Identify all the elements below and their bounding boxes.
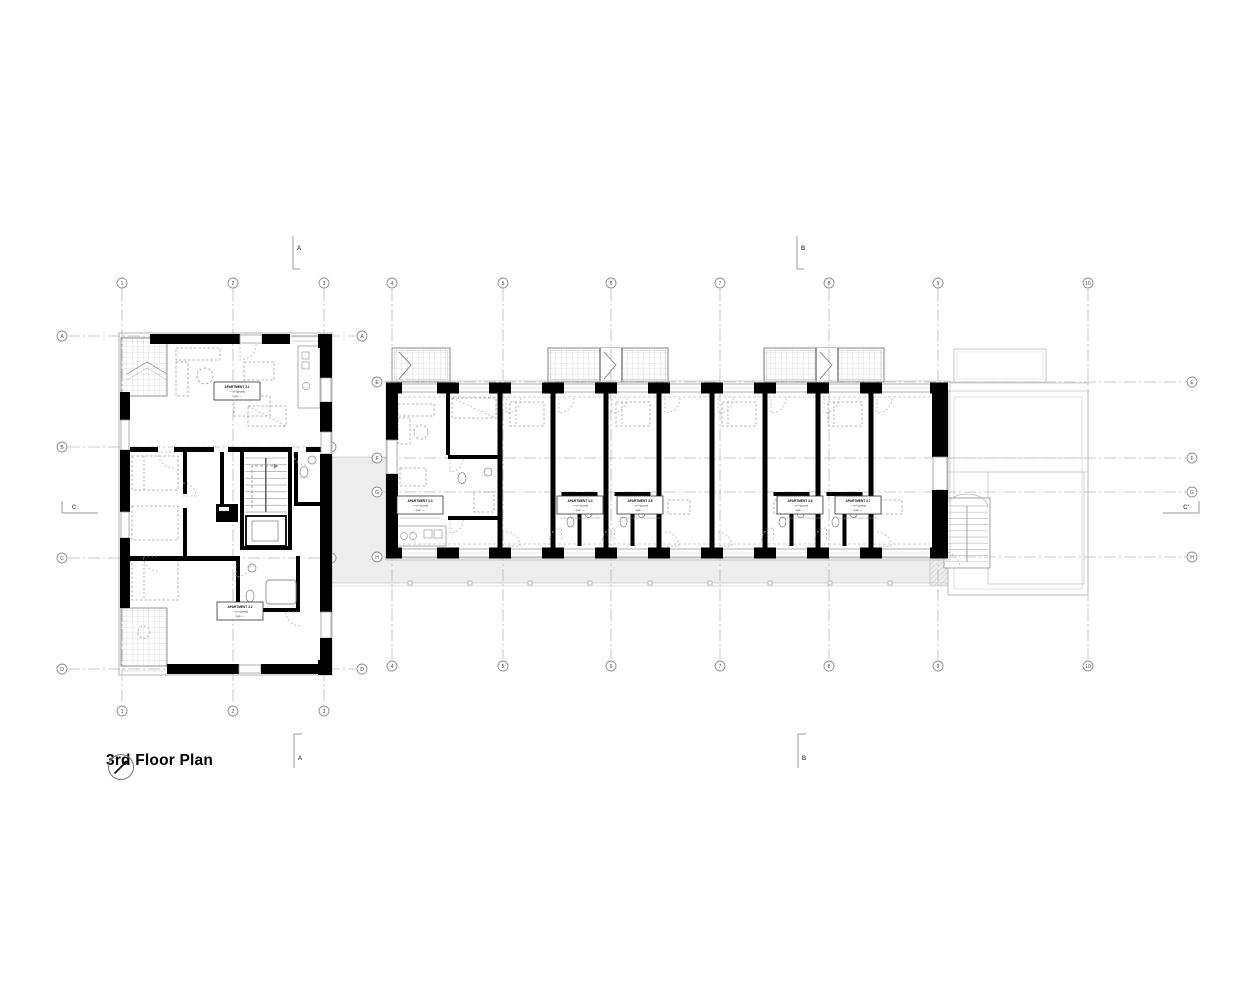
table-outline xyxy=(197,368,213,384)
railing-post xyxy=(588,581,592,585)
window xyxy=(321,612,331,638)
interior-wall xyxy=(183,508,187,556)
grid-row-letter: H xyxy=(1190,555,1194,561)
exterior-wall xyxy=(167,664,239,674)
railing-post xyxy=(888,581,892,585)
interior-wall xyxy=(294,452,298,504)
window xyxy=(321,378,331,402)
grid-column-number: 4 xyxy=(391,281,394,287)
door-swing xyxy=(158,452,174,468)
apartment-area: — m² (gross) xyxy=(572,504,588,508)
interior-wall xyxy=(228,447,292,452)
grid-row-letter: C xyxy=(60,556,64,562)
interior-wall xyxy=(448,516,500,520)
core-wall xyxy=(288,452,292,550)
closet-outline xyxy=(880,500,902,514)
grid-column-number: 9 xyxy=(937,664,940,670)
apartment-label: APARTMENT 3.3— m² (gross)type — xyxy=(397,496,443,514)
north-arrow-icon xyxy=(106,752,136,782)
grid-column-number: 5 xyxy=(502,281,505,287)
balcony-divider xyxy=(817,348,837,382)
grid-column-number: 4 xyxy=(391,664,394,670)
apartment-area: — m² (gross) xyxy=(632,504,648,508)
interior-wall xyxy=(130,556,238,561)
grid-column-number: 1 xyxy=(121,709,124,715)
bathroom-wall xyxy=(562,492,598,496)
closet-outline xyxy=(668,500,690,514)
grid-column-number: 3 xyxy=(323,709,326,715)
apartment-name: APARTMENT 3.4 xyxy=(567,499,592,503)
bed-outline xyxy=(828,402,862,426)
floor-plan-sheet: 1122334455667788991010AABBCCDDEEFFGGHHAB… xyxy=(0,0,1237,1000)
interior-wall xyxy=(294,502,322,506)
door-swing xyxy=(771,398,786,413)
interior-wall xyxy=(174,447,214,452)
window xyxy=(240,335,262,343)
apartment-area: — m² (gross) xyxy=(412,504,428,508)
apartment-type: type — xyxy=(796,508,805,512)
exterior-wall xyxy=(648,383,670,394)
toilet-fixture xyxy=(620,517,627,527)
interior-wall xyxy=(236,556,240,608)
exterior-wall xyxy=(320,454,332,560)
door-swing xyxy=(824,398,839,413)
exterior-wall xyxy=(807,383,829,394)
table-outline xyxy=(244,362,274,380)
exterior-wall xyxy=(860,383,882,394)
grid-column-number: 10 xyxy=(1085,664,1091,670)
wardrobe-diagonal xyxy=(452,398,496,418)
section-letter: A xyxy=(298,756,303,762)
bed-outline xyxy=(132,506,178,540)
window xyxy=(239,665,261,673)
window xyxy=(933,457,947,490)
apartment-label: APARTMENT 3.5— m² (gross)type — xyxy=(617,496,663,514)
exterior-wall xyxy=(754,383,776,394)
interior-wall xyxy=(448,455,500,459)
apartment-name: APARTMENT 3.1 xyxy=(224,385,249,389)
apartment-name: APARTMENT 3.6 xyxy=(787,499,812,503)
apartment-type: type — xyxy=(576,508,585,512)
railing-post xyxy=(528,581,532,585)
door-swing xyxy=(612,398,627,413)
sink-basin xyxy=(401,533,408,540)
exterior-wall xyxy=(595,383,617,394)
party-wall xyxy=(869,393,874,548)
balcony xyxy=(121,608,167,666)
balcony xyxy=(121,338,167,396)
apartment-name: APARTMENT 3.2 xyxy=(227,605,252,609)
exterior-wall xyxy=(932,490,948,558)
railing-post xyxy=(708,581,712,585)
exterior-wall xyxy=(120,450,130,512)
exterior-wall xyxy=(386,474,398,558)
apartment-name: APARTMENT 3.5 xyxy=(627,499,652,503)
grid-column-number: 8 xyxy=(828,664,831,670)
exterior-wall xyxy=(261,664,318,674)
bathtub-fixture xyxy=(266,580,296,604)
exterior-wall xyxy=(701,548,723,559)
interior-wall xyxy=(220,452,224,504)
apartment-label: APARTMENT 3.6— m² (gross)type — xyxy=(777,496,823,514)
exterior-wall xyxy=(386,383,398,440)
toilet-fixture xyxy=(779,517,786,527)
grid-row-letter: G xyxy=(375,490,379,496)
window xyxy=(121,420,129,450)
section-letter: C xyxy=(72,505,77,511)
exterior-wall xyxy=(807,548,829,559)
grid-row-letter: F xyxy=(1190,456,1193,462)
exterior-wall xyxy=(318,334,332,348)
apartment-type: type — xyxy=(416,508,425,512)
door-swing xyxy=(665,532,679,546)
exterior-wall xyxy=(150,334,240,344)
interior-wall xyxy=(183,452,187,494)
window xyxy=(387,440,397,474)
bed-outline xyxy=(616,402,650,426)
party-wall xyxy=(710,393,715,548)
grid-row-letter: H xyxy=(375,555,379,561)
exterior-wall xyxy=(320,560,332,612)
sink-basin xyxy=(410,533,417,540)
duct-slot xyxy=(219,507,229,511)
stove-burner xyxy=(302,362,309,369)
stove-burner xyxy=(434,530,442,538)
grid-column-number: 10 xyxy=(1085,281,1091,287)
door-swing xyxy=(240,344,256,360)
toilet-fixture xyxy=(567,517,574,527)
exterior-wall xyxy=(120,538,130,608)
window xyxy=(121,512,129,538)
kitchen-counter xyxy=(392,526,446,546)
interior-wall xyxy=(306,447,322,452)
grid-row-letter: D xyxy=(60,667,64,673)
apartment-label: APARTMENT 3.1— m² (gross)type — xyxy=(214,382,260,400)
exterior-wall xyxy=(542,383,564,394)
railing-post xyxy=(408,581,412,585)
toilet-fixture xyxy=(300,467,308,478)
grid-row-letter: D xyxy=(360,667,364,673)
grid-column-number: 6 xyxy=(610,664,613,670)
exterior-wall xyxy=(320,402,332,432)
bed-outline xyxy=(132,560,178,600)
apartment-type: type — xyxy=(636,508,645,512)
toilet-fixture xyxy=(832,517,839,527)
table-outline xyxy=(400,468,426,486)
stove-burner xyxy=(424,530,432,538)
core-wall xyxy=(240,452,244,550)
exterior-wall xyxy=(489,548,511,559)
apartment-area: — m² (gross) xyxy=(232,610,248,614)
railing-post xyxy=(648,581,652,585)
bathroom-wall xyxy=(827,492,863,496)
party-wall xyxy=(551,393,556,548)
apartment-type: type — xyxy=(236,614,245,618)
section-letter: B xyxy=(801,246,806,252)
exterior-wall xyxy=(437,383,459,394)
sink-fixture xyxy=(484,468,492,476)
grid-column-number: 2 xyxy=(232,281,235,287)
sofa-outline xyxy=(176,348,220,360)
bed-outline xyxy=(132,456,178,490)
shower-outline xyxy=(474,492,494,512)
bathroom-wall xyxy=(615,492,651,496)
door-swing xyxy=(450,520,463,533)
exterior-wall xyxy=(860,548,882,559)
party-wall xyxy=(763,393,768,548)
grid-column-number: 8 xyxy=(828,281,831,287)
table-outline xyxy=(414,425,428,439)
exterior-wall xyxy=(262,334,290,344)
door-swing xyxy=(559,398,574,413)
railing-post xyxy=(468,581,472,585)
bar-outer-outline xyxy=(386,381,950,560)
exterior-wall xyxy=(595,548,617,559)
apartment-label: APARTMENT 3.2— m² (gross)type — xyxy=(217,602,263,620)
exterior-wall xyxy=(648,548,670,559)
apartment-area: — m² (gross) xyxy=(792,504,808,508)
railing-post xyxy=(768,581,772,585)
duct-shaft xyxy=(216,504,238,522)
window xyxy=(321,432,331,454)
exterior-wall xyxy=(542,548,564,559)
section-letter: C' xyxy=(1183,505,1189,511)
grid-column-number: 9 xyxy=(937,281,940,287)
walkway-terrace xyxy=(332,457,962,583)
grid-column-number: 3 xyxy=(323,281,326,287)
exterior-wall xyxy=(489,383,511,394)
exterior-wall xyxy=(120,392,130,420)
interior-wall xyxy=(296,556,300,612)
sink-fixture xyxy=(308,456,316,464)
sink-fixture xyxy=(248,564,256,572)
toilet-fixture xyxy=(246,590,254,602)
grid-column-number: 5 xyxy=(502,664,505,670)
apartment-name: APARTMENT 3.7 xyxy=(845,499,870,503)
apartment-label: APARTMENT 3.4— m² (gross)type — xyxy=(557,496,603,514)
party-wall xyxy=(498,393,503,548)
apartment-name: APARTMENT 3.3 xyxy=(407,499,432,503)
party-wall xyxy=(657,393,662,548)
door-swing xyxy=(877,398,892,413)
stove-burner xyxy=(302,352,309,359)
apartment-area: — m² (gross) xyxy=(229,390,245,394)
exterior-wall xyxy=(320,348,332,378)
exterior-wall xyxy=(932,383,948,457)
grid-column-number: 6 xyxy=(610,281,613,287)
apartment-area: — m² (gross) xyxy=(850,504,866,508)
grid-column-number: 2 xyxy=(232,709,235,715)
section-letter: B xyxy=(802,756,807,762)
door-swing xyxy=(665,398,680,413)
toilet-fixture xyxy=(458,473,466,484)
grid-column-number: 1 xyxy=(121,281,124,287)
door-swing xyxy=(286,612,300,626)
door-swing xyxy=(506,398,521,413)
floor-plan-drawing: 1122334455667788991010AABBCCDDEEFFGGHHAB… xyxy=(0,0,1237,1000)
exterior-wall xyxy=(437,548,459,559)
sofa-outline xyxy=(176,362,188,396)
bathroom-wall xyxy=(774,492,810,496)
exterior-wall xyxy=(701,383,723,394)
roof-terrace-outline xyxy=(954,349,1046,382)
bed-outline xyxy=(722,402,756,426)
sofa-outline xyxy=(398,418,410,444)
grid-row-letter: G xyxy=(1190,490,1194,496)
bed-outline xyxy=(510,402,544,426)
north-needle xyxy=(115,761,128,774)
section-letter: A xyxy=(297,246,302,252)
interior-wall xyxy=(130,447,158,452)
sofa-outline xyxy=(398,404,434,416)
party-wall xyxy=(604,393,609,548)
door-swing xyxy=(450,459,463,472)
interior-wall xyxy=(446,393,450,455)
apartment-label: APARTMENT 3.7— m² (gross)type — xyxy=(835,496,881,514)
grid-column-number: 7 xyxy=(719,281,722,287)
sink-basin xyxy=(303,383,310,390)
title-block: 3rd Floor Plan xyxy=(106,752,213,770)
apartment-type: type — xyxy=(854,508,863,512)
party-wall xyxy=(816,393,821,548)
apartment-type: type — xyxy=(233,394,242,398)
exterior-wall xyxy=(318,660,332,675)
exterior-wall xyxy=(754,548,776,559)
grid-row-letter: F xyxy=(375,456,378,462)
grid-column-number: 7 xyxy=(719,664,722,670)
